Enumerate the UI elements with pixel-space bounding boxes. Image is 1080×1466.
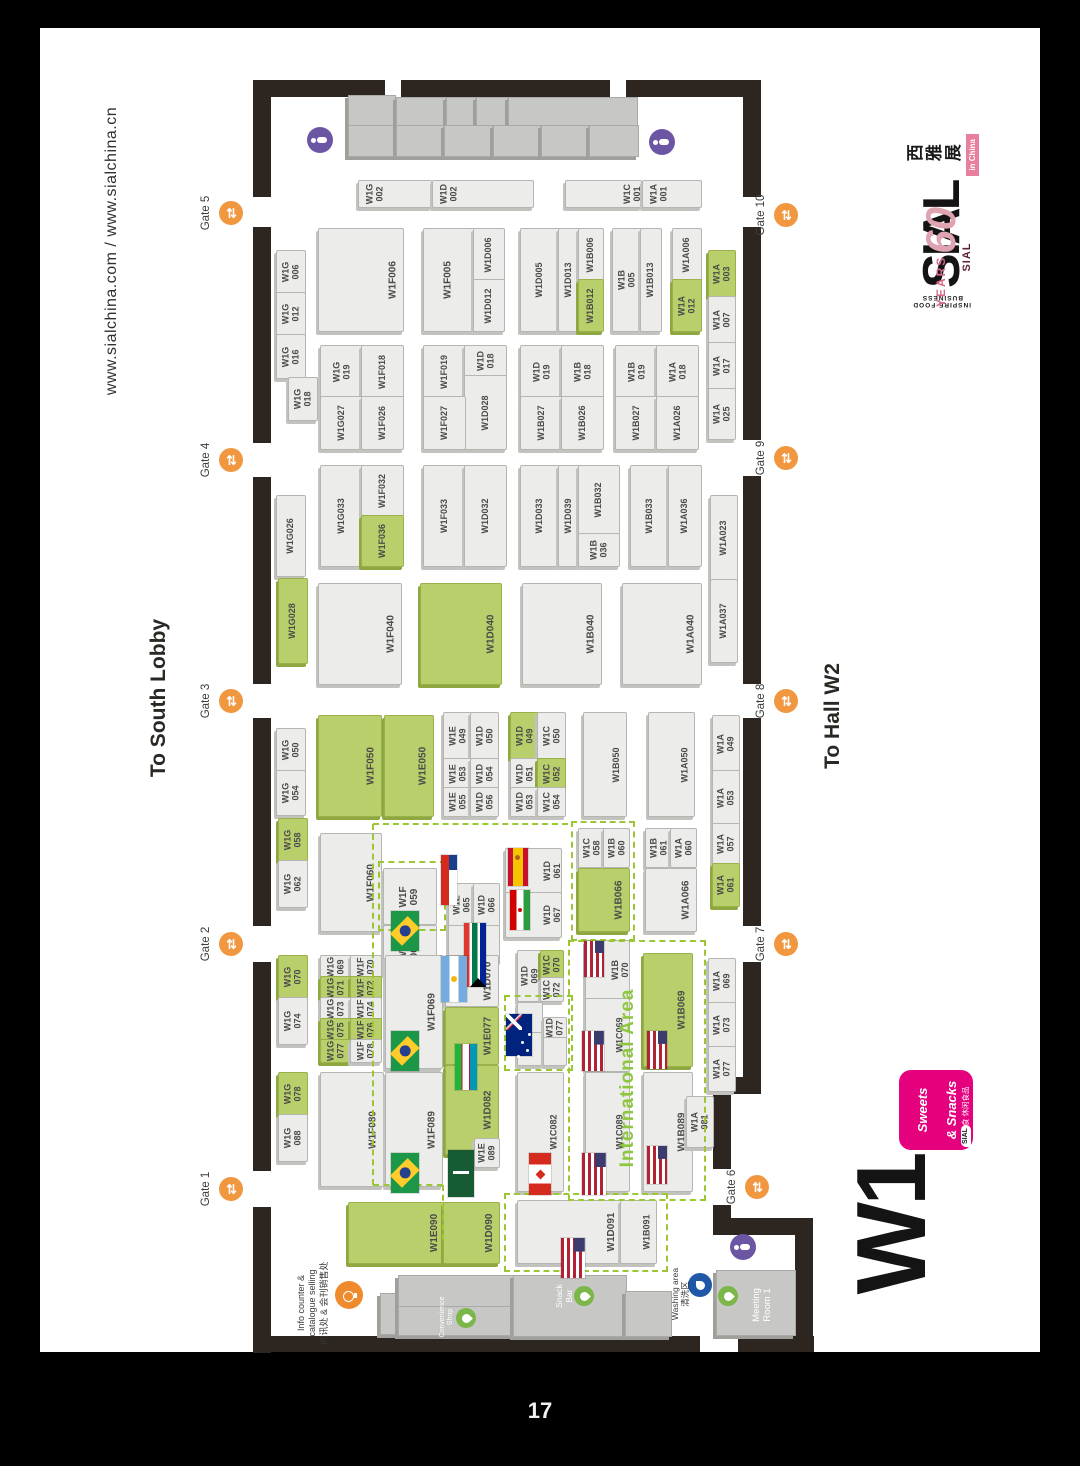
booth-W1G077: W1G 077 — [320, 1039, 352, 1063]
gate-label: Gate 2 — [199, 910, 213, 978]
gate-icon: ⇄ — [774, 932, 798, 956]
booth-label: W1A066 — [682, 881, 693, 920]
booth-label: W1A 007 — [712, 310, 731, 330]
booth-W1F076: W1F 076 — [350, 1018, 382, 1041]
service-booth — [380, 1293, 400, 1335]
toilet-icon — [307, 127, 333, 153]
booth-W1B040: W1B040 — [522, 583, 602, 685]
booth-W1A077: W1A 077 — [708, 1046, 736, 1092]
international-area-label: International Area — [616, 949, 640, 1207]
brazil-flag-icon — [391, 1031, 419, 1071]
booth-label: W1A036 — [680, 498, 690, 533]
gate-icon: ⇄ — [774, 446, 798, 470]
booth-W1G002: W1G 002 — [358, 180, 432, 208]
gate-label: Gate 4 — [199, 426, 213, 494]
booth-W1F018: W1F018 — [361, 345, 404, 398]
booth-W1D002: W1D 002 — [432, 180, 534, 208]
booth-label: W1D012 — [484, 288, 494, 323]
booth-label: W1F080 — [369, 1111, 380, 1149]
page-number: 17 — [520, 1398, 560, 1424]
wall-segment — [253, 80, 271, 197]
toilet-icon — [649, 129, 675, 155]
booth-W1D012: W1D012 — [473, 279, 505, 332]
booth-label: W1F019 — [440, 354, 450, 388]
booth-label: W1D082 — [484, 1091, 495, 1130]
booth-label: W1D005 — [535, 262, 545, 297]
booth-W1B006: W1B006 — [578, 228, 604, 281]
booth-label: W1G 078 — [283, 1084, 302, 1105]
booth-W1F036: W1F036 — [361, 515, 404, 567]
booth-W1B026: W1B026 — [561, 396, 604, 450]
booth-label: W1A 049 — [716, 734, 735, 754]
booth-W1G028: W1G028 — [278, 578, 308, 664]
usa-flag-icon — [582, 1153, 606, 1195]
booth-label: W1C 054 — [542, 792, 561, 812]
booth-W1F006: W1F006 — [318, 228, 404, 332]
booth-W1G075: W1G 075 — [320, 1018, 352, 1041]
service-booth — [625, 1291, 672, 1337]
booth-W1A036: W1A036 — [668, 465, 702, 567]
booth-label: W1B 036 — [589, 540, 608, 560]
booth-label: W1G 002 — [365, 184, 384, 205]
service-booth — [508, 97, 638, 127]
booth-label: W1D 061 — [542, 861, 561, 881]
booth-label: W1A050 — [680, 747, 690, 782]
booth-label: W1D013 — [564, 262, 574, 297]
booth-label: W1D 069 — [520, 966, 539, 986]
booth-W1G026: W1G026 — [276, 495, 306, 577]
booth-label: W1G 018 — [293, 389, 312, 410]
booth-label: W1B027 — [632, 405, 642, 440]
booth-label: W1G 070 — [283, 967, 302, 988]
gate-label: Gate 6 — [725, 1153, 739, 1221]
booth-W1B033: W1B033 — [630, 465, 670, 567]
booth-W1A057: W1A 057 — [712, 823, 740, 865]
booth-label: W1E 049 — [448, 726, 467, 746]
service-booth — [493, 125, 541, 157]
booth-W1B019: W1B 019 — [615, 345, 658, 398]
booth-W1B005: W1B 005 — [612, 228, 642, 332]
booth-W1E050: W1E050 — [384, 715, 434, 817]
booth-label: W1D 054 — [475, 764, 494, 784]
booth-W1G050: W1G 050 — [276, 728, 306, 772]
booth-label: W1C082 — [549, 1114, 559, 1149]
booth-label: W1G 006 — [281, 262, 300, 283]
service-booth — [444, 125, 493, 157]
booth-W1D013: W1D013 — [558, 228, 580, 332]
wall-segment — [738, 1336, 814, 1352]
booth-W1G058: W1G 058 — [278, 818, 308, 862]
booth-label: W1A 018 — [668, 362, 687, 382]
booth-W1G054: W1G 054 — [276, 770, 306, 816]
convenience-shop-label: Convenience Shop — [436, 1294, 458, 1340]
booth-W1F050: W1F050 — [318, 715, 382, 817]
sweets-snacks-badge: Sweets & Snacks 甜食 休闲食品 SIAL — [899, 1070, 973, 1150]
booth-W1G019: W1G 019 — [320, 345, 363, 398]
booth-label: W1B013 — [646, 262, 656, 297]
gate-icon: ⇄ — [219, 932, 243, 956]
argentina-flag-icon — [441, 956, 467, 1002]
booth-label: W1B012 — [586, 288, 596, 323]
gate-label: Gate 1 — [199, 1155, 213, 1223]
booth-W1A006: W1A006 — [672, 228, 702, 281]
booth-label: W1G027 — [337, 405, 347, 441]
booth-W1D032: W1D032 — [464, 465, 507, 567]
hall-w1-label: W1 — [848, 1118, 934, 1332]
booth-W1C070: W1C 070 — [540, 950, 564, 979]
60-years-label: YEARS — [935, 256, 947, 307]
booth-W1D049: W1D 049 — [510, 712, 539, 760]
service-icon — [718, 1286, 738, 1306]
booth-label: W1F050 — [367, 747, 378, 785]
booth-label: W1F069 — [428, 993, 439, 1031]
in-china-badge: in China — [966, 134, 979, 176]
booth-label: W1D032 — [481, 498, 491, 533]
booth-label: W1B 019 — [627, 362, 646, 382]
service-booth — [396, 125, 444, 157]
booth-W1A069: W1A 069 — [708, 958, 736, 1004]
booth-label: W1C 052 — [542, 764, 561, 784]
service-icon — [456, 1308, 476, 1328]
booth-W1D056: W1D 056 — [470, 787, 499, 817]
booth-label: W1F005 — [444, 261, 455, 299]
booth-label: W1G026 — [286, 518, 296, 554]
international-area-boundary — [571, 821, 635, 941]
booth-W1B050: W1B050 — [583, 712, 627, 817]
booth-W1D028: W1D028 — [464, 375, 507, 450]
booth-W1B013: W1B013 — [640, 228, 662, 332]
booth-W1G078: W1G 078 — [278, 1072, 308, 1116]
booth-label: W1G 073 — [326, 998, 345, 1019]
booth-label: W1D 019 — [532, 362, 551, 382]
canada-flag-icon — [529, 1153, 551, 1195]
booth-W1C050: W1C 050 — [537, 712, 566, 760]
service-booth — [541, 125, 589, 157]
gate-label: Gate 10 — [754, 181, 768, 249]
booth-label: W1B027 — [537, 405, 547, 440]
booth-label: W1E050 — [419, 747, 430, 785]
booth-W1A037: W1A037 — [710, 579, 738, 663]
wall-segment — [743, 718, 761, 926]
gate-icon: ⇄ — [219, 1177, 243, 1201]
booth-label: W1D028 — [481, 395, 491, 430]
booth-label: W1A 001 — [649, 184, 668, 204]
booth-label: W1A 017 — [712, 356, 731, 376]
service-booth — [348, 125, 396, 157]
booth-W1D040: W1D040 — [420, 583, 502, 685]
booth-W1D033: W1D033 — [520, 465, 560, 567]
wall-segment — [743, 80, 761, 197]
badge-line2: & Snacks — [944, 1081, 959, 1140]
to-hall-w2-label: To Hall W2 — [820, 630, 846, 802]
service-booth — [476, 97, 508, 127]
sial-logo-chinese: 西雅展 — [906, 142, 963, 167]
booth-label: W1A006 — [682, 237, 692, 272]
booth-W1C052: W1C 052 — [537, 758, 566, 789]
booth-label: W1A 057 — [716, 834, 735, 854]
booth-W1D006: W1D006 — [473, 228, 505, 281]
booth-label: W1G 069 — [326, 956, 345, 977]
booth-label: W1G 062 — [283, 874, 302, 895]
booth-label: W1D 002 — [439, 184, 458, 204]
booth-W1G006: W1G 006 — [276, 250, 306, 294]
booth-W1A001: W1A 001 — [642, 180, 702, 208]
booth-W1A025: W1A 025 — [708, 388, 736, 440]
international-area-boundary — [372, 824, 374, 1185]
saudi-flag-icon — [448, 1150, 474, 1197]
booth-W1A053: W1A 053 — [712, 770, 740, 825]
booth-label: W1A 053 — [716, 788, 735, 808]
booth-W1A018: W1A 018 — [656, 345, 699, 398]
booth-W1D005: W1D005 — [520, 228, 560, 332]
spain-flag-icon — [508, 848, 528, 886]
booth-W1D066: W1D 066 — [473, 883, 500, 927]
booth-label: W1F018 — [378, 354, 388, 388]
booth-label: W1B 061 — [649, 838, 668, 858]
website-url: www.sialchina.com / www.sialchina.cn — [100, 65, 124, 437]
booth-label: W1A 061 — [716, 875, 735, 895]
booth-W1B012: W1B012 — [578, 279, 604, 332]
booth-label: W1A 025 — [712, 404, 731, 424]
gate-icon: ⇄ — [219, 689, 243, 713]
usa-flag-icon — [647, 1146, 667, 1184]
booth-label: W1G 088 — [283, 1128, 302, 1149]
usa-flag-icon — [582, 1031, 604, 1071]
booth-label: W1C 050 — [542, 726, 561, 746]
info-counter-label: Info counter & catalogue selling 问讯处 & 会… — [288, 1259, 338, 1347]
booth-label: W1F036 — [378, 524, 388, 558]
gate-label: Gate 8 — [754, 667, 768, 735]
booth-label: W1D 053 — [515, 792, 534, 812]
booth-label: W1B 005 — [617, 270, 636, 290]
badge-sial: SIAL — [961, 1125, 971, 1147]
service-booth — [348, 95, 396, 127]
booth-label: W1B 018 — [573, 362, 592, 382]
brazil-flag-icon — [391, 1153, 419, 1193]
booth-W1G012: W1G 012 — [276, 292, 306, 336]
booth-W1A060: W1A 060 — [670, 828, 697, 868]
australia-flag-icon — [506, 1014, 532, 1056]
booth-label: W1G 075 — [326, 1019, 345, 1040]
booth-W1A050: W1A050 — [648, 712, 695, 817]
booth-label: W1G 071 — [326, 977, 345, 998]
booth-label: W1A023 — [719, 520, 729, 555]
booth-W1D051: W1D 051 — [510, 758, 539, 789]
booth-label: W1D 067 — [542, 905, 561, 925]
booth-label: W1C 001 — [622, 184, 641, 204]
booth-W1D039: W1D039 — [558, 465, 580, 567]
booth-label: W1A026 — [673, 405, 683, 440]
booth-label: W1D040 — [487, 615, 498, 654]
booth-label: W1B050 — [612, 747, 622, 782]
booth-W1E089: W1E 089 — [474, 1138, 500, 1168]
wall-segment — [626, 80, 761, 97]
wall-segment — [253, 227, 271, 443]
service-booth — [396, 97, 446, 127]
booth-label: W1B032 — [594, 482, 604, 517]
gate-icon: ⇄ — [219, 448, 243, 472]
booth-W1D054: W1D 054 — [470, 758, 499, 789]
booth-W1E090: W1E090 — [348, 1202, 445, 1264]
booth-label: W1D 066 — [477, 895, 496, 915]
scanned-page: W1G 002W1D 002W1C 001W1A 001W1F006W1F005… — [0, 0, 1080, 1466]
usa-flag-icon — [647, 1031, 667, 1069]
booth-W1F019: W1F019 — [423, 345, 466, 398]
booth-label: W1A 003 — [712, 264, 731, 284]
service-booth — [446, 97, 476, 127]
service-booth — [589, 125, 639, 157]
chile-flag-icon — [441, 855, 457, 905]
booth-label: W1A 012 — [677, 296, 696, 316]
booth-label: W1A040 — [687, 615, 698, 654]
booth-W1A066: W1A066 — [645, 868, 697, 932]
60-sial-label: SIAL — [962, 242, 973, 271]
booth-label: W1F006 — [389, 261, 400, 299]
booth-label: W1G 058 — [283, 830, 302, 851]
booth-W1A003: W1A 003 — [708, 250, 736, 298]
booth-label: W1E077 — [484, 1017, 495, 1055]
booth-label: W1E 053 — [448, 764, 467, 784]
booth-label: W1A037 — [719, 603, 729, 638]
booth-label: W1F026 — [378, 406, 388, 440]
washing-area-label: Washing area 清洗区 — [668, 1262, 692, 1326]
wall-segment — [401, 80, 610, 97]
iran-flag-icon — [510, 890, 530, 930]
booth-label: W1D006 — [484, 237, 494, 272]
gate-icon: ⇄ — [774, 689, 798, 713]
booth-W1G062: W1G 062 — [278, 860, 308, 908]
gate-label: Gate 3 — [199, 667, 213, 735]
booth-label: W1G 050 — [281, 740, 300, 761]
booth-W1G073: W1G 073 — [320, 997, 352, 1020]
usa-flag-icon — [584, 941, 604, 977]
booth-label: W1D 018 — [476, 351, 495, 371]
booth-W1B027: W1B027 — [520, 396, 563, 450]
booth-label: W1B026 — [578, 405, 588, 440]
booth-W1D050: W1D 050 — [470, 712, 499, 760]
booth-W1D053: W1D 053 — [510, 787, 539, 817]
booth-W1G074: W1G 074 — [278, 997, 308, 1045]
booth-label: W1E090 — [430, 1214, 441, 1252]
booth-label: W1D039 — [564, 498, 574, 533]
booth-W1G027: W1G027 — [320, 396, 363, 450]
booth-label: W1G 054 — [281, 783, 300, 804]
wall-segment — [253, 477, 271, 684]
booth-label: W1D033 — [535, 498, 545, 533]
wall-segment — [795, 1218, 813, 1352]
booth-W1B061: W1B 061 — [645, 828, 672, 868]
booth-W1A026: W1A026 — [656, 396, 699, 450]
booth-W1G070: W1G 070 — [278, 955, 308, 999]
booth-label: W1G033 — [337, 498, 347, 534]
booth-label: W1D 051 — [515, 764, 534, 784]
booth-W1G033: W1G033 — [320, 465, 363, 567]
booth-label: W1D 050 — [475, 726, 494, 746]
booth-W1F070: W1F 070 — [350, 955, 382, 978]
booth-W1A017: W1A 017 — [708, 342, 736, 390]
booth-W1C001: W1C 001 — [565, 180, 642, 208]
badge-line1: Sweets — [915, 1088, 930, 1133]
info-counter-icon — [335, 1281, 363, 1309]
wall-segment — [743, 962, 761, 1077]
booth-W1C054: W1C 054 — [537, 787, 566, 817]
booth-W1B032: W1B032 — [578, 465, 620, 535]
gate-label: Gate 5 — [199, 179, 213, 247]
booth-W1A023: W1A023 — [710, 495, 738, 581]
booth-W1E049: W1E 049 — [443, 712, 472, 760]
uzbekistan-flag-icon — [455, 1044, 477, 1090]
booth-label: W1D 049 — [515, 726, 534, 746]
booth-label: W1E 055 — [448, 792, 467, 812]
booth-W1E053: W1E 053 — [443, 758, 472, 789]
booth-W1G071: W1G 071 — [320, 976, 352, 999]
booth-W1F032: W1F032 — [361, 465, 404, 517]
booth-label: W1G 077 — [326, 1041, 345, 1062]
wall-segment — [743, 227, 761, 440]
international-area-boundary — [442, 1185, 444, 1240]
booth-W1F040: W1F040 — [318, 583, 402, 685]
booth-W1G069: W1G 069 — [320, 955, 352, 978]
booth-label: W1G 019 — [332, 361, 351, 382]
gate-icon: ⇄ — [774, 203, 798, 227]
booth-W1F078: W1F 078 — [350, 1039, 382, 1063]
sial-60-years-logo: YEARS 60 SIAL — [908, 214, 984, 300]
booth-W1A049: W1A 049 — [712, 715, 740, 772]
international-area-boundary — [373, 823, 568, 825]
wall-segment — [253, 718, 271, 926]
booth-label: W1D 056 — [475, 792, 494, 812]
booth-label: W1A 077 — [712, 1059, 731, 1079]
booth-W1B027: W1B027 — [615, 396, 658, 450]
booth-label: W1A 069 — [712, 971, 731, 991]
booth-label: W1B006 — [586, 237, 596, 272]
booth-W1F027: W1F027 — [423, 396, 466, 450]
booth-label: W1F027 — [440, 406, 450, 440]
booth-label: W1F032 — [378, 474, 388, 508]
booth-W1A040: W1A040 — [622, 583, 702, 685]
booth-W1B036: W1B 036 — [578, 533, 620, 567]
wall-segment — [743, 476, 761, 684]
snack-bar-label: Snack Bar — [552, 1270, 578, 1322]
booth-W1F080: W1F080 — [320, 1072, 384, 1187]
brazil-flag-icon — [391, 911, 419, 951]
wall-segment — [253, 1207, 271, 1353]
booth-W1G018: W1G 018 — [288, 377, 318, 421]
booth-label: W1G 016 — [281, 346, 300, 367]
booth-W1G016: W1G 016 — [276, 334, 306, 379]
booth-W1A073: W1A 073 — [708, 1002, 736, 1048]
booth-W1D019: W1D 019 — [520, 345, 563, 398]
60-numeral: 60 — [920, 207, 962, 254]
booth-label: W1F040 — [387, 615, 398, 653]
booth-W1D090: W1D090 — [443, 1202, 500, 1264]
booth-W1F033: W1F033 — [423, 465, 466, 567]
booth-label: W1A 073 — [712, 1015, 731, 1035]
booth-W1A061: W1A 061 — [712, 863, 740, 907]
booth-label: W1G028 — [288, 603, 298, 639]
booth-label: W1B033 — [645, 498, 655, 533]
booth-W1B018: W1B 018 — [561, 345, 604, 398]
booth-label: W1B040 — [587, 615, 598, 654]
booth-label: W1A 060 — [674, 838, 693, 858]
international-area-boundary — [504, 1193, 668, 1272]
booth-label: W1G 074 — [283, 1011, 302, 1032]
booth-label: W1G 012 — [281, 304, 300, 325]
booth-W1F026: W1F026 — [361, 396, 404, 450]
booth-W1F005: W1F005 — [423, 228, 475, 332]
gate-label: Gate 9 — [754, 424, 768, 492]
meeting-room-label: Meeting Room 1 — [748, 1274, 778, 1336]
